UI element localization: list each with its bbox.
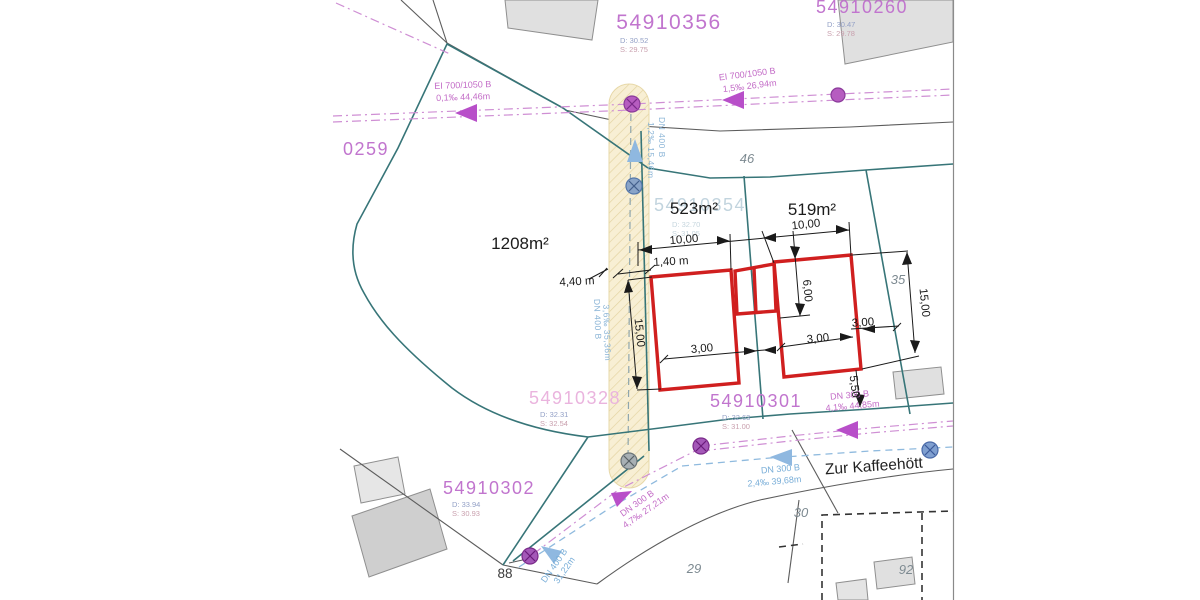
- dim-depth-house: 6,00: [800, 279, 814, 302]
- area-label-1208: 1208m²: [491, 234, 549, 253]
- parcel-sub-s: S: 32.54: [540, 419, 568, 428]
- utility-label-sewer-ne: EI 700/1050 B 1,5‰ 26,94m: [718, 66, 777, 95]
- svg-text:15,00: 15,00: [917, 288, 932, 318]
- proposed-house-right: [774, 255, 861, 377]
- lot-number-30: 30: [794, 505, 809, 520]
- parcel-sub-d: D: 33.94: [452, 500, 480, 509]
- dim-width-left: 10,00: [669, 233, 699, 247]
- dim-depth-right: 15,00: [917, 288, 932, 318]
- building-bottom-sliver: [836, 579, 868, 600]
- parcel-label-54910302: 54910302: [443, 478, 535, 498]
- svg-text:6,00: 6,00: [800, 279, 814, 302]
- svg-text:EI 700/1050 B: EI 700/1050 B: [434, 79, 491, 91]
- parcel-sub-d: D: 32.70: [672, 220, 700, 229]
- lot-number-88: 88: [497, 566, 512, 581]
- dim-gap-mid: 3,00: [806, 332, 830, 346]
- parcel-sub-d: D: 32.31: [540, 410, 568, 419]
- parcel-label-54910328: 54910328: [529, 388, 621, 408]
- site-plan-map[interactable]: 54910354 D: 32.70 S: 31.05 54910356 D: 3…: [0, 0, 1200, 600]
- proposed-connector-divider: [754, 268, 756, 313]
- street-name: Zur Kaffeehött: [824, 455, 924, 479]
- proposed-house-left: [651, 270, 739, 390]
- parcel-label-54910301: 54910301: [710, 391, 802, 411]
- dim-offset-road: 4,40 m: [559, 275, 595, 289]
- svg-text:2,4‰ 39,68m: 2,4‰ 39,68m: [747, 474, 802, 489]
- area-label-519: 519m²: [788, 200, 837, 219]
- lot-number-35: 35: [891, 272, 906, 287]
- manhole-icon: [626, 178, 642, 194]
- dim-gap-left: 3,00: [690, 342, 713, 356]
- manhole-icon: [522, 548, 538, 564]
- parcel-sub-d: D: 30.52: [620, 36, 648, 45]
- parcel-sub-s: S: 30.93: [452, 509, 480, 518]
- parcel-sub-s: S: 31.00: [722, 422, 750, 431]
- dim-gap-right: 3,00: [851, 316, 874, 330]
- area-label-523: 523m²: [670, 199, 719, 218]
- building-top-center: [505, 0, 598, 40]
- utility-label-strip-lower: DN 400 B 3,6‰ 35,36m: [592, 298, 613, 361]
- svg-text:0,1‰ 44,46m: 0,1‰ 44,46m: [436, 91, 490, 103]
- utility-label-water-street: DN 300 B 2,4‰ 39,68m: [746, 462, 802, 489]
- parcel-sub-s: S: 29.78: [827, 29, 855, 38]
- parcel-sub-s: S: 29.75: [620, 45, 648, 54]
- manhole-icon: [831, 88, 845, 102]
- svg-text:DN 400 B: DN 400 B: [657, 117, 667, 158]
- boundary-523-519: [744, 176, 763, 419]
- lot-number-46: 46: [740, 151, 755, 166]
- utility-label-water-slope: DN 400 B 31,22m: [539, 547, 579, 591]
- svg-text:1,2‰ 15,46m: 1,2‰ 15,46m: [646, 122, 656, 179]
- parcel-label-0259: 0259: [343, 139, 389, 159]
- manhole-icon: [693, 438, 709, 454]
- dim-width-right: 10,00: [791, 218, 821, 233]
- utility-label-sewer-nw: EI 700/1050 B 0,1‰ 44,46m: [434, 79, 492, 103]
- sewer-line-street: [532, 421, 953, 555]
- parcel-label-54910260: 54910260: [816, 0, 908, 17]
- manhole-icon: [621, 453, 637, 469]
- svg-text:3,6‰ 35,36m: 3,6‰ 35,36m: [601, 304, 613, 361]
- utility-label-strip-upper: DN 400 B 1,2‰ 15,46m: [646, 117, 667, 179]
- lot-number-92: 92: [899, 562, 914, 577]
- dim-offset-strip: 1,40 m: [653, 255, 689, 269]
- parcel-sub-d: D: 32.63: [722, 413, 750, 422]
- manhole-icon: [922, 442, 938, 458]
- lot-number-29: 29: [686, 561, 701, 576]
- parcel-label-54910356: 54910356: [616, 11, 721, 34]
- building-right-small: [893, 367, 944, 399]
- flow-arrow-sewer-nw: [455, 104, 477, 122]
- site-plan-page: 54910354 D: 32.70 S: 31.05 54910356 D: 3…: [0, 0, 1200, 600]
- svg-text:DN 300 B: DN 300 B: [761, 462, 801, 475]
- manhole-icon: [624, 96, 640, 112]
- parcel-sub-d: D: 30.47: [827, 20, 855, 29]
- boundary-parcel-1208: [353, 44, 588, 437]
